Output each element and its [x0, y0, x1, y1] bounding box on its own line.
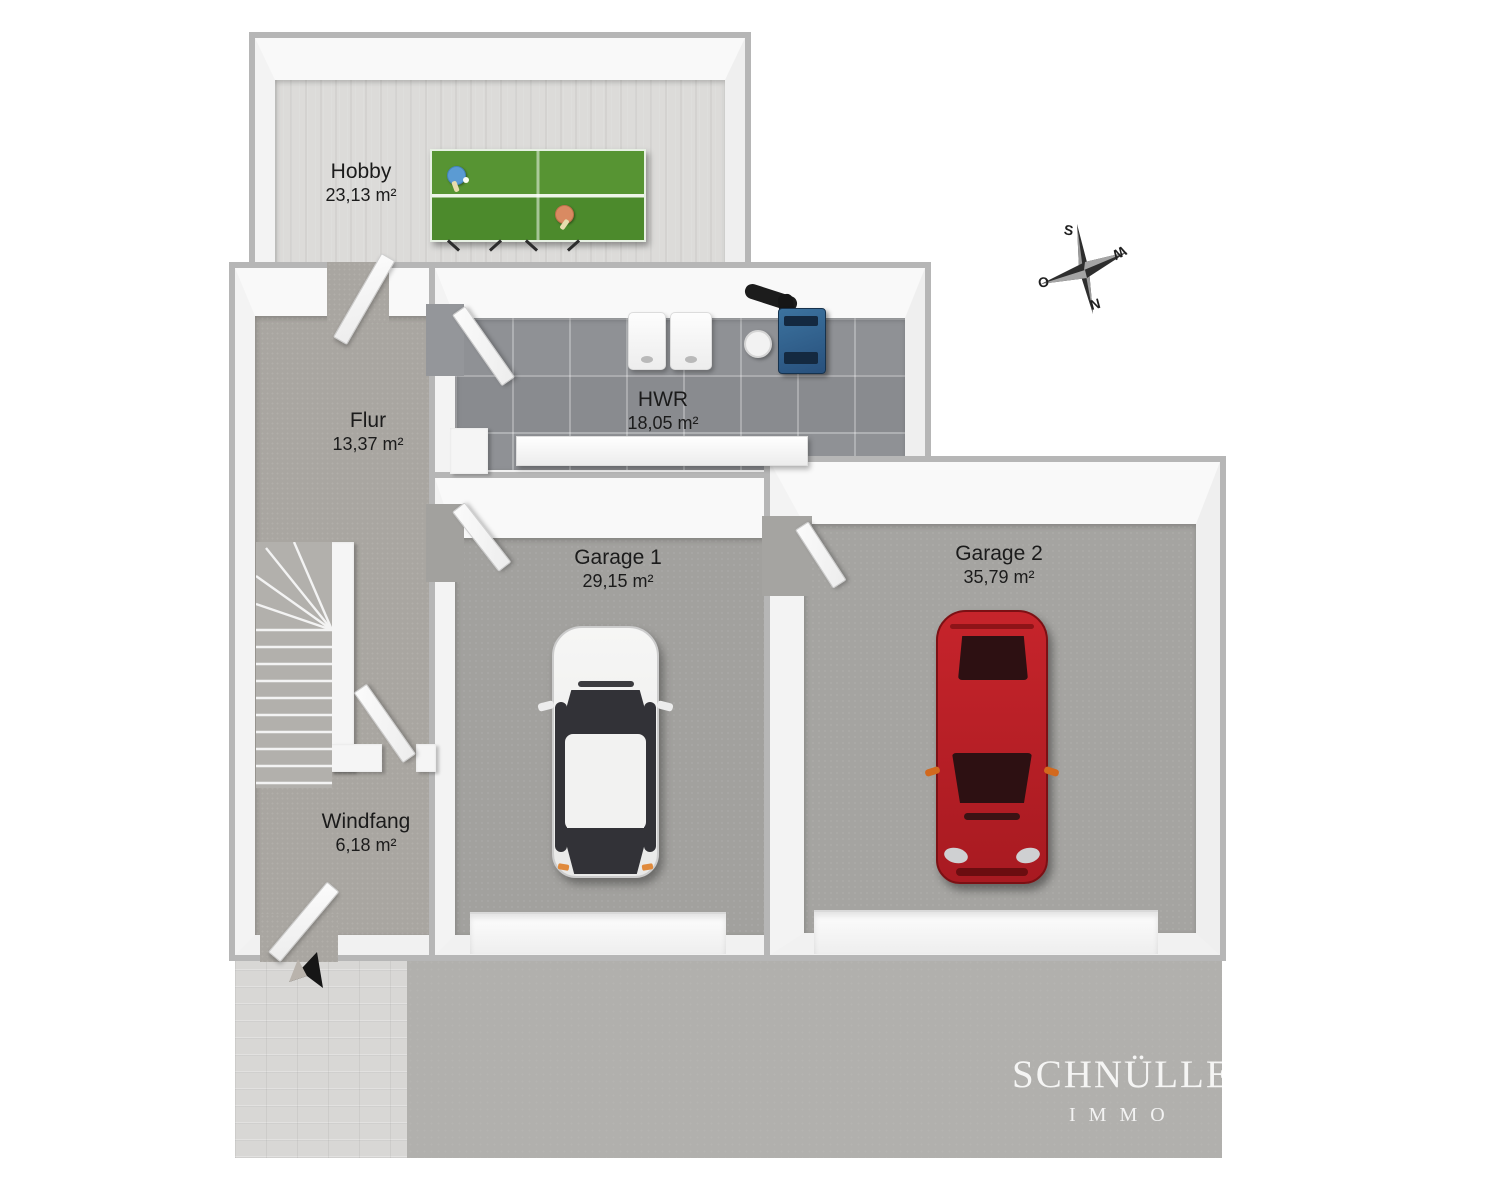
room-area: 35,79 m²: [955, 568, 1043, 588]
bucket: [744, 330, 772, 358]
washing-machine: [628, 312, 666, 370]
white-car: [552, 626, 659, 878]
boiler-panel: [784, 316, 818, 326]
white-car-roof: [565, 734, 646, 830]
room-label-garage2: Garage 2 35,79 m²: [955, 542, 1043, 588]
red-car-rear-window: [958, 636, 1028, 680]
ping-pong-table: [430, 149, 646, 242]
boiler-panel: [784, 352, 818, 364]
hwr-cabinet: [450, 428, 488, 474]
compass-icon: [1035, 222, 1135, 317]
room-area: 29,15 m²: [574, 572, 662, 592]
watermark-brand: SCHNÜLLE & B: [1012, 1052, 1222, 1097]
room-area: 23,13 m²: [325, 186, 396, 206]
room-name: Garage 2: [955, 542, 1043, 565]
red-car-front-lip: [956, 868, 1028, 876]
hwr-counter: [516, 436, 808, 466]
white-car-windshield: [558, 690, 653, 738]
room-name: Flur: [332, 409, 403, 432]
room-label-windfang: Windfang 6,18 m²: [322, 810, 411, 856]
room-name: Garage 1: [574, 546, 662, 569]
entrance-arrow-icon: [283, 948, 335, 1000]
watermark-subtitle: IMMO: [1069, 1104, 1178, 1127]
machine-knob: [685, 356, 697, 363]
garage1-door: [470, 912, 726, 954]
white-car-rear-window: [562, 828, 649, 874]
ping-pong-ball: [463, 177, 469, 183]
room-name: Windfang: [322, 810, 411, 833]
room-area: 6,18 m²: [322, 836, 411, 856]
white-car-hood-vent: [578, 681, 634, 687]
room-label-hwr: HWR 18,05 m²: [627, 388, 698, 434]
room-label-flur: Flur 13,37 m²: [332, 409, 403, 455]
room-area: 18,05 m²: [627, 414, 698, 434]
windfang-wall-left: [330, 744, 382, 772]
staircase: [256, 542, 332, 788]
red-car-windshield: [952, 753, 1032, 803]
room-label-garage1: Garage 1 29,15 m²: [574, 546, 662, 592]
stairs-side-wall: [330, 542, 354, 772]
red-car-hood-vent: [964, 813, 1020, 820]
dryer: [670, 312, 712, 370]
red-car-spoiler: [950, 624, 1034, 629]
driveway: SCHNÜLLE & B IMMO: [407, 952, 1222, 1158]
room-name: HWR: [627, 388, 698, 411]
room-area: 13,37 m²: [332, 435, 403, 455]
machine-knob: [641, 356, 653, 363]
red-car: [936, 610, 1048, 884]
floor-plan: SCHNÜLLE & B IMMO: [0, 0, 1500, 1200]
garage2-door: [814, 910, 1158, 954]
room-label-hobby: Hobby 23,13 m²: [325, 160, 396, 206]
windfang-wall-right: [416, 744, 436, 772]
compass-letter-o: O: [1037, 273, 1051, 291]
room-name: Hobby: [325, 160, 396, 183]
